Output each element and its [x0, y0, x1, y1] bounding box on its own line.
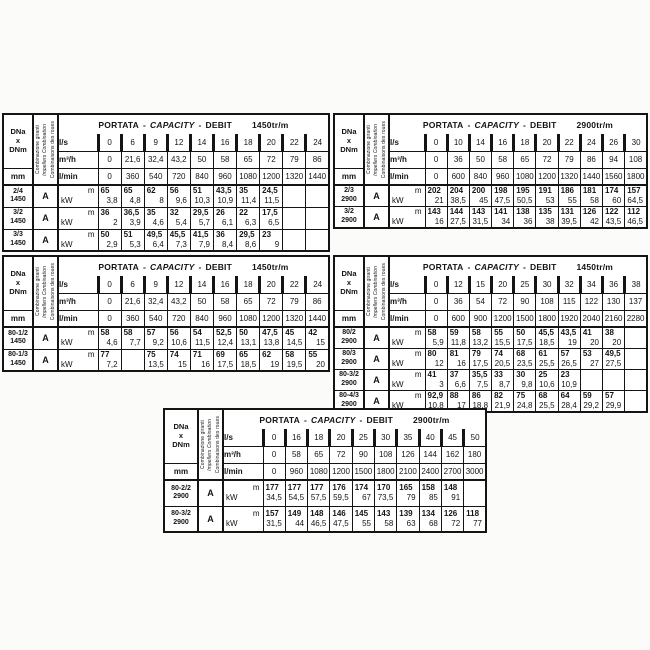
- unit-m-label: m: [59, 230, 98, 240]
- flow-ls-value: 0: [98, 276, 121, 293]
- m-value: 17,5: [260, 208, 282, 218]
- flow-ls-value: 40: [419, 429, 441, 446]
- kw-value: [283, 196, 305, 206]
- flow-m3h-value: 122: [580, 293, 602, 310]
- flow-lmin-value: 2100: [397, 463, 419, 480]
- speed-label: 2900tr/m: [577, 120, 614, 130]
- head-power-cell: 11246,5: [625, 207, 647, 229]
- flow-lmin-value: 1320: [558, 168, 580, 185]
- flow-m3h-value: 58: [213, 293, 236, 310]
- m-value: 41: [426, 370, 447, 380]
- flow-ls-value: 26: [603, 134, 625, 151]
- flow-m3h-value: 36: [447, 151, 469, 168]
- impeller-combination-value: A: [33, 349, 58, 371]
- flow-ls-value: 30: [536, 276, 558, 293]
- flow-m3h-value: 79: [558, 151, 580, 168]
- head-power-cell: 5819,5: [283, 349, 306, 371]
- head-power-cell: 12672: [441, 506, 463, 532]
- kw-value: [625, 338, 646, 348]
- m-value: 122: [603, 207, 624, 217]
- head-power-cell: 3820: [603, 327, 625, 349]
- m-value: 55: [492, 328, 513, 338]
- flow-m3h-value: 72: [330, 446, 352, 463]
- kw-value: 63: [397, 519, 418, 529]
- kw-value: 20,5: [492, 359, 513, 369]
- flow-ls-value: 20: [492, 276, 514, 293]
- m-value: 35: [237, 186, 259, 196]
- flow-m3h-value: 21,6: [121, 151, 144, 168]
- kw-value: 85: [420, 493, 441, 503]
- flow-ls-value: 20: [330, 429, 352, 446]
- flow-ls-value: 25: [514, 276, 536, 293]
- flow-lmin-value: 1500: [514, 310, 536, 327]
- kw-value: 59,5: [330, 493, 351, 503]
- unit-label: l/min: [223, 463, 263, 480]
- m-value: 146: [330, 509, 351, 519]
- kw-value: [625, 401, 646, 411]
- kw-value: 5,9: [426, 338, 447, 348]
- model-label: 80/32900: [334, 349, 364, 370]
- flow-m3h-value: 72: [260, 293, 283, 310]
- kw-value: 18,5: [237, 360, 259, 370]
- m-value: 165: [397, 483, 418, 493]
- head-power-cell: 17659,5: [330, 480, 352, 506]
- unit-m-label: m: [59, 186, 98, 196]
- kw-value: 2: [99, 218, 121, 228]
- m-value: 195: [514, 186, 535, 196]
- speed-label: 1450tr/m: [577, 262, 614, 272]
- m-value: 24,5: [260, 186, 282, 196]
- title-debit: DEBIT: [530, 262, 557, 272]
- flow-m3h-value: 50: [190, 151, 213, 168]
- m-value: 51: [191, 186, 213, 196]
- m-value: 126: [581, 207, 602, 217]
- head-power-cell: 5610,6: [167, 327, 190, 349]
- m-value: 33: [492, 370, 513, 380]
- head-power-cell: 13836: [514, 207, 536, 229]
- head-power-cell: [306, 185, 329, 207]
- kw-value: 15: [306, 338, 328, 348]
- table-row: 80-1/31450AmkW777,27513,5741571166917,56…: [3, 349, 329, 371]
- flow-ls-value: 32: [558, 276, 580, 293]
- kw-value: 18,5: [536, 338, 557, 348]
- m-value: [283, 208, 305, 218]
- mkw-unit-label: mkW: [389, 185, 425, 207]
- title-portata: PORTATA: [423, 262, 464, 272]
- m-value: 64: [559, 391, 580, 401]
- title-portata: PORTATA: [259, 415, 300, 425]
- m-value: 139: [397, 509, 418, 519]
- flow-m3h-value: 130: [603, 293, 625, 310]
- model-code: 80-1/2: [4, 330, 32, 339]
- flow-m3h-value: 65: [237, 293, 260, 310]
- kw-value: 10,6: [168, 338, 190, 348]
- unit-m-label: m: [390, 186, 425, 196]
- head-power-cell: 5813,2: [469, 327, 491, 349]
- kw-value: [625, 359, 646, 369]
- model-label: 80-3/22900: [164, 506, 198, 532]
- flow-ls-value: 0: [425, 276, 447, 293]
- head-power-cell: 29,55,7: [190, 207, 213, 229]
- m-value: 23: [559, 370, 580, 380]
- title-portata: PORTATA: [98, 262, 139, 272]
- head-power-cell: 45,57,3: [167, 229, 190, 251]
- flow-lmin-value: 2160: [603, 310, 625, 327]
- m-value: 174: [603, 186, 624, 196]
- kw-value: 10,6: [536, 380, 557, 390]
- head-power-cell: 7524,8: [514, 391, 536, 413]
- flow-ls-value: 20: [536, 134, 558, 151]
- kw-value: 9,2: [145, 338, 167, 348]
- head-power-cell: [580, 370, 602, 391]
- table-row: 80-2/22900AmkW17734,517754,517757,517659…: [164, 480, 486, 506]
- kw-value: 24,8: [514, 401, 535, 411]
- m-value: 29,5: [191, 208, 213, 218]
- head-power-cell: 5515,5: [492, 327, 514, 349]
- kw-value: 19,5: [283, 360, 305, 370]
- head-power-cell: 266,1: [213, 207, 236, 229]
- kw-value: 47,5: [492, 196, 513, 206]
- head-power-cell: 2510,6: [536, 370, 558, 391]
- flow-lmin-value: 1800: [374, 463, 396, 480]
- flow-m3h-value: 115: [558, 293, 580, 310]
- m-value: 143: [375, 509, 396, 519]
- combination-label-it: Combinazione giranti: [35, 267, 41, 316]
- head-power-cell: 8116: [447, 349, 469, 370]
- m-value: 25: [536, 370, 557, 380]
- kw-value: 38,5: [448, 196, 469, 206]
- flow-m3h-value: 126: [397, 446, 419, 463]
- kw-value: 42: [581, 217, 602, 227]
- flow-ls-value: 18: [514, 134, 536, 151]
- m-value: 32: [168, 208, 190, 218]
- head-power-cell: 13963: [397, 506, 419, 532]
- flow-lmin-value: 1560: [603, 168, 625, 185]
- unit-label: l/s: [58, 276, 98, 293]
- model-label: 80-3/22900: [334, 370, 364, 391]
- head-power-cell: 6428,4: [558, 391, 580, 413]
- capacity-table-mid-left-1450: DNaxDNmCombinazione girantiImpellers Com…: [2, 255, 330, 372]
- head-power-cell: 579,2: [144, 327, 167, 349]
- kw-value: 79: [397, 493, 418, 503]
- flow-ls-value: 22: [283, 134, 306, 151]
- head-power-cell: 35,57,5: [469, 370, 491, 391]
- m-value: 138: [514, 207, 535, 217]
- head-power-cell: 15731,5: [263, 506, 285, 532]
- model-speed: 2900: [335, 380, 363, 389]
- flow-ls-value: 12: [447, 276, 469, 293]
- model-code: 80-1/3: [4, 351, 32, 360]
- m-value: 62: [260, 350, 282, 360]
- mkw-unit-label: mkW: [389, 349, 425, 370]
- kw-value: 2,9: [99, 240, 121, 250]
- combination-label-fr: Combinaisons des roues: [215, 416, 221, 473]
- m-value: [306, 186, 328, 196]
- impeller-combination-value: A: [364, 349, 389, 370]
- m-value: 174: [353, 483, 374, 493]
- unit-kw-label: kW: [59, 196, 98, 206]
- kw-value: 47,5: [330, 519, 351, 529]
- kw-value: 46,5: [625, 217, 646, 227]
- flow-lmin-value: 0: [98, 310, 121, 327]
- m-value: 57: [603, 391, 624, 401]
- capacity-table-top-right-2900: DNaxDNmCombinazione girantiImpellers Com…: [333, 113, 648, 229]
- kw-value: 26,5: [559, 359, 580, 369]
- corner-dna-label: DNaxDNm: [3, 114, 33, 168]
- flow-m3h-value: 180: [464, 446, 486, 463]
- unit-label: l/min: [58, 168, 98, 185]
- kw-value: 21,9: [492, 401, 513, 411]
- table-row: 80-3/22900AmkW15731,51494414846,514647,5…: [164, 506, 486, 532]
- head-power-cell: 5726,5: [558, 349, 580, 370]
- head-power-cell: 24,511,5: [260, 185, 283, 207]
- kw-value: 14,5: [283, 338, 305, 348]
- model-speed: 2900: [335, 359, 363, 368]
- unit-label: l/s: [389, 134, 425, 151]
- impellers-combination-column: Combinazione girantiImpellers Combinatio…: [364, 114, 389, 185]
- flow-lmin-value: 0: [263, 463, 285, 480]
- kw-value: [625, 380, 646, 390]
- model-code: 2/3: [335, 187, 363, 196]
- head-power-cell: 19153: [536, 185, 558, 207]
- impeller-combination-value: A: [198, 506, 223, 532]
- head-power-cell: 14331,5: [469, 207, 491, 229]
- flow-ls-value: 45: [441, 429, 463, 446]
- m-value: 50: [514, 328, 535, 338]
- kw-value: 27: [581, 359, 602, 369]
- model-speed: 1450: [4, 218, 32, 227]
- head-power-cell: 18158: [580, 185, 602, 207]
- table-row: 80/22900AmkW585,95911,85813,25515,55017,…: [334, 327, 647, 349]
- head-power-cell: 7513,5: [144, 349, 167, 371]
- unit-kw-label: kW: [59, 360, 98, 370]
- m-value: [581, 370, 602, 380]
- combination-label-it: Combinazione giranti: [366, 267, 372, 316]
- mkw-unit-label: mkW: [58, 349, 98, 371]
- kw-value: 58: [375, 519, 396, 529]
- unit-label: l/min: [389, 168, 425, 185]
- m-value: [306, 208, 328, 218]
- m-value: 131: [559, 207, 580, 217]
- head-power-cell: 11877: [464, 506, 486, 532]
- flow-lmin-value: 1080: [237, 310, 260, 327]
- head-power-cell: 14647,5: [330, 506, 352, 532]
- flow-m3h-value: 43,2: [167, 151, 190, 168]
- kw-value: 10,9: [559, 380, 580, 390]
- m-value: 58: [470, 328, 491, 338]
- kw-value: 54,5: [286, 493, 307, 503]
- combination-label-en: Impellers Combination: [42, 266, 48, 318]
- m-value: 198: [492, 186, 513, 196]
- m-value: 45,5: [168, 230, 190, 240]
- flow-m3h-value: 0: [425, 151, 447, 168]
- head-power-cell: 7917,5: [469, 349, 491, 370]
- head-power-cell: [306, 207, 329, 229]
- m-value: 191: [536, 186, 557, 196]
- head-power-cell: 777,2: [98, 349, 121, 371]
- head-power-cell: 654,8: [121, 185, 144, 207]
- kw-value: 68: [420, 519, 441, 529]
- unit-kw-label: kW: [59, 218, 98, 228]
- m-value: 36: [214, 230, 236, 240]
- mkw-unit-label: mkW: [58, 327, 98, 349]
- speed-label: 1450tr/m: [252, 120, 289, 130]
- unit-m-label: m: [390, 207, 425, 217]
- head-power-cell: [625, 370, 647, 391]
- unit-m-label: m: [59, 350, 98, 360]
- m-value: 74: [492, 349, 513, 359]
- m-value: 148: [308, 509, 329, 519]
- head-power-cell: 14555: [352, 506, 374, 532]
- m-value: 112: [625, 207, 646, 217]
- model-code: 80/3: [335, 350, 363, 359]
- head-power-cell: [306, 229, 329, 251]
- head-power-cell: 6219: [260, 349, 283, 371]
- flow-m3h-value: 72: [536, 151, 558, 168]
- m-value: [625, 391, 646, 401]
- flow-m3h-value: 65: [514, 151, 536, 168]
- flow-ls-value: 9: [144, 276, 167, 293]
- model-label: 2/41450: [3, 185, 33, 207]
- head-power-cell: 43,510,9: [213, 185, 236, 207]
- unit-label: l/s: [389, 276, 425, 293]
- flow-ls-value: 22: [558, 134, 580, 151]
- unit-kw-label: kW: [390, 338, 425, 348]
- flow-m3h-value: 58: [492, 151, 514, 168]
- kw-value: 16: [191, 360, 213, 370]
- flow-ls-value: 30: [374, 429, 396, 446]
- head-power-cell: 6825,5: [536, 391, 558, 413]
- m-value: 50: [99, 230, 121, 240]
- table-title: PORTATA-CAPACITY-DEBIT1450tr/m: [58, 114, 329, 134]
- m-value: 53: [581, 349, 602, 359]
- m-value: 145: [353, 509, 374, 519]
- flow-ls-value: 14: [190, 276, 213, 293]
- head-power-cell: [625, 349, 647, 370]
- head-power-cell: 17734,5: [263, 480, 285, 506]
- m-value: 68: [514, 349, 535, 359]
- m-value: 49,5: [603, 349, 624, 359]
- mkw-unit-label: mkW: [389, 327, 425, 349]
- combination-label-it: Combinazione giranti: [35, 125, 41, 174]
- head-power-cell: 5110,3: [190, 185, 213, 207]
- kw-value: 11,4: [237, 196, 259, 206]
- m-value: [625, 349, 646, 359]
- kw-value: 77: [464, 519, 485, 529]
- unit-kw-label: kW: [390, 196, 425, 206]
- flow-m3h-value: 50: [190, 293, 213, 310]
- kw-value: 10,3: [191, 196, 213, 206]
- head-power-cell: 17073,5: [374, 480, 396, 506]
- head-power-cell: 5911,8: [447, 327, 469, 349]
- flow-ls-value: 16: [285, 429, 307, 446]
- mkw-unit-label: mkW: [389, 207, 425, 229]
- m-value: 35: [145, 208, 167, 218]
- kw-value: 5,4: [168, 218, 190, 228]
- m-value: 59: [448, 328, 469, 338]
- mm-label: mm: [3, 168, 33, 185]
- kw-value: 6,3: [237, 218, 259, 228]
- kw-value: 4,6: [99, 338, 121, 348]
- flow-ls-value: 15: [469, 276, 491, 293]
- flow-ls-value: 6: [121, 134, 144, 151]
- mkw-unit-label: mkW: [223, 506, 263, 532]
- m-value: 35,5: [470, 370, 491, 380]
- model-label: 2/32900: [334, 185, 364, 207]
- kw-value: 4,8: [122, 196, 144, 206]
- mm-label: mm: [164, 463, 198, 480]
- kw-value: 13,8: [260, 338, 282, 348]
- flow-m3h-value: 58: [285, 446, 307, 463]
- kw-value: 19: [260, 360, 282, 370]
- flow-ls-value: 18: [237, 276, 260, 293]
- flow-lmin-value: 1320: [283, 168, 306, 185]
- flow-lmin-value: 1440: [306, 168, 329, 185]
- kw-value: [306, 218, 328, 228]
- head-power-cell: 502,9: [98, 229, 121, 251]
- catalog-page: DNaxDNmCombinazione girantiImpellers Com…: [0, 0, 650, 650]
- flow-lmin-value: 2280: [625, 310, 647, 327]
- unit-label: m³/h: [389, 293, 425, 310]
- m-value: 126: [442, 509, 463, 519]
- head-power-cell: 6823,5: [514, 349, 536, 370]
- flow-m3h-value: 79: [283, 151, 306, 168]
- head-power-cell: 43,519: [558, 327, 580, 349]
- m-value: 54: [191, 328, 213, 338]
- flow-ls-value: 12: [167, 134, 190, 151]
- title-capacity: CAPACITY: [475, 262, 519, 272]
- impeller-combination-value: A: [33, 207, 58, 229]
- kw-value: 5,7: [191, 218, 213, 228]
- kw-value: 11,5: [260, 196, 282, 206]
- impeller-combination-value: A: [33, 229, 58, 251]
- title-dash: -: [523, 262, 526, 272]
- title-debit: DEBIT: [206, 120, 233, 130]
- kw-value: 5,3: [122, 240, 144, 250]
- speed-label: 2900tr/m: [413, 415, 450, 425]
- flow-m3h-value: 86: [306, 293, 329, 310]
- m-value: 58: [99, 328, 121, 338]
- title-dash: -: [523, 120, 526, 130]
- kw-value: 8,7: [492, 380, 513, 390]
- m-value: 149: [286, 509, 307, 519]
- impeller-combination-value: A: [364, 185, 389, 207]
- speed-label: 1450tr/m: [252, 262, 289, 272]
- kw-value: 60: [603, 196, 624, 206]
- combination-label-en: Impellers Combination: [373, 266, 379, 318]
- model-speed: 2900: [335, 196, 363, 205]
- kw-value: 36: [514, 217, 535, 227]
- kw-value: 13,1: [237, 338, 259, 348]
- kw-value: 28,4: [559, 401, 580, 411]
- kw-value: 6,1: [214, 218, 236, 228]
- head-power-cell: 19847,5: [492, 185, 514, 207]
- head-power-cell: [283, 207, 306, 229]
- title-capacity: CAPACITY: [150, 262, 194, 272]
- kw-value: 8,4: [214, 240, 236, 250]
- title-dash: -: [468, 262, 471, 272]
- head-power-cell: 338,7: [492, 370, 514, 391]
- head-power-cell: 52,512,4: [213, 327, 236, 349]
- m-value: 177: [286, 483, 307, 493]
- model-speed: 2900: [165, 519, 197, 528]
- flow-m3h-value: 43,2: [167, 293, 190, 310]
- flow-lmin-value: 2040: [580, 310, 602, 327]
- unit-kw-label: kW: [390, 217, 425, 227]
- head-power-cell: 49,56,4: [144, 229, 167, 251]
- m-value: 61: [536, 349, 557, 359]
- head-power-cell: 19550,5: [514, 185, 536, 207]
